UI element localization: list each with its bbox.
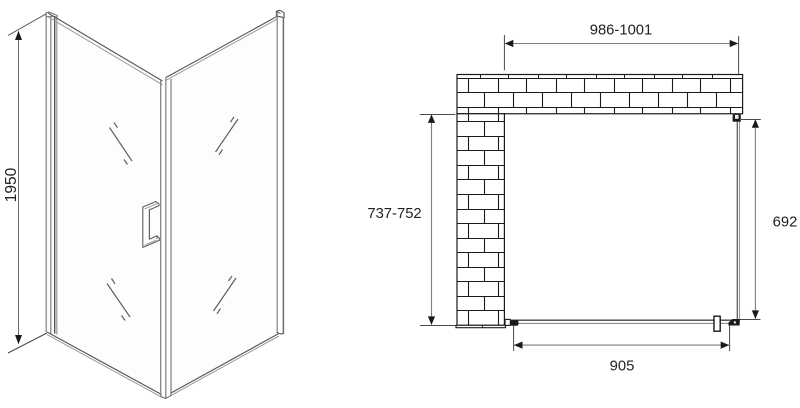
- svg-text:692: 692: [773, 215, 798, 231]
- svg-text:1950: 1950: [3, 167, 20, 202]
- svg-text:905: 905: [610, 359, 635, 375]
- svg-text:737-752: 737-752: [367, 206, 421, 222]
- svg-text:986-1001: 986-1001: [590, 23, 653, 39]
